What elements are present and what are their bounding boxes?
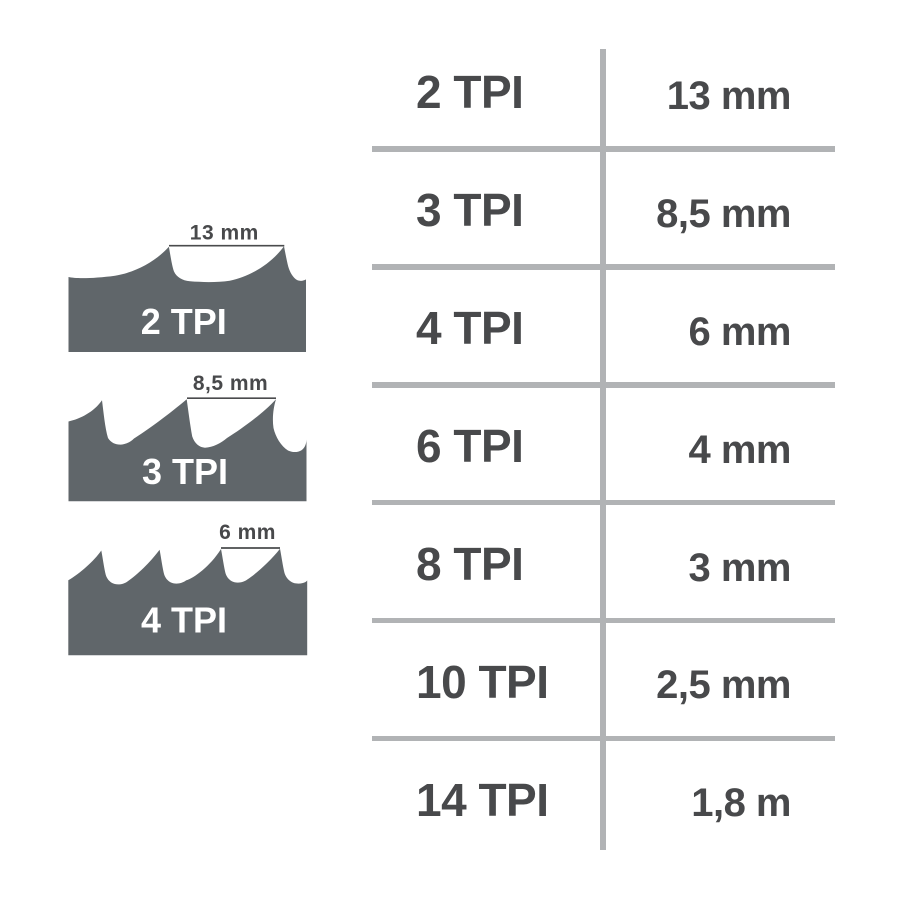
svg-text:8,5 mm: 8,5 mm [193, 372, 268, 395]
svg-text:4 TPI: 4 TPI [141, 600, 227, 641]
svg-text:13 mm: 13 mm [190, 222, 259, 245]
svg-text:2 TPI: 2 TPI [141, 301, 227, 342]
svg-text:6 mm: 6 mm [219, 521, 276, 544]
svg-text:3 TPI: 3 TPI [142, 451, 228, 492]
